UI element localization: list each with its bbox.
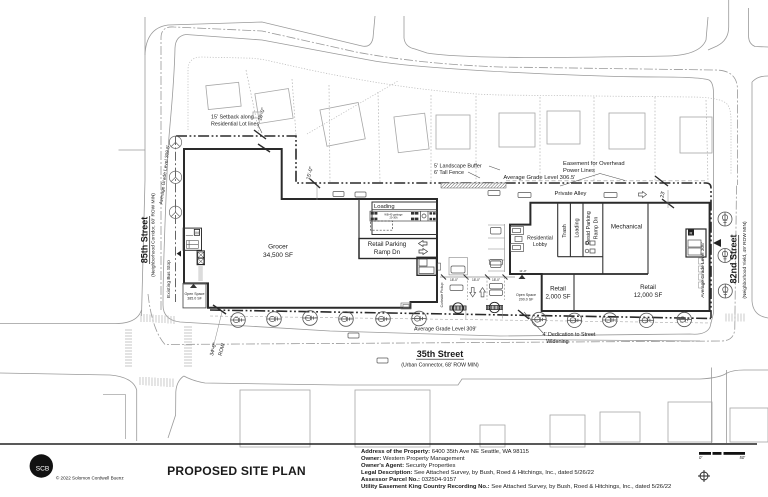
svg-text:Ramp Dn: Ramp Dn [374,249,401,256]
svg-text:Loading: Loading [575,218,581,237]
svg-text:Retail: Retail [640,284,656,291]
svg-text:34,500 SF: 34,500 SF [263,252,293,259]
svg-text:12,000 SF: 12,000 SF [634,292,663,299]
svg-text:Mechanical: Mechanical [611,224,642,231]
svg-text:Private Alley: Private Alley [555,191,587,197]
svg-text:15' Setback along: 15' Setback along [211,115,254,121]
svg-text:4' Dedication to Street: 4' Dedication to Street [543,332,596,338]
svg-text:6' Tall Fence: 6' Tall Fence [434,170,464,176]
svg-text:PROPOSED SITE PLAN: PROPOSED SITE PLAN [167,464,306,478]
svg-text:5' Landscape Buffer: 5' Landscape Buffer [434,164,482,170]
svg-text:Curbside Pickup: Curbside Pickup [440,283,444,308]
svg-text:Grocer: Grocer [268,244,289,251]
svg-text:© 2022 Solomon Cordwell Buenz: © 2022 Solomon Cordwell Buenz [56,475,124,481]
svg-text:Retail: Retail [550,286,566,293]
svg-text:0': 0' [699,455,702,460]
svg-text:20-30ft: 20-30ft [389,216,397,220]
svg-text:Retail Parking: Retail Parking [368,241,407,248]
svg-text:Loading: Loading [374,204,395,210]
svg-text:Easement for Overhead: Easement for Overhead [563,161,625,167]
svg-text:Legal Description: See Attache: Legal Description: See Attached Survey, … [361,470,594,476]
svg-text:23': 23' [660,191,667,199]
svg-text:Average Grade Level 306.5': Average Grade Level 306.5' [503,175,575,181]
svg-text:Assessor Parcel No.: 032504-91: Assessor Parcel No.: 032504-9157 [361,477,456,483]
svg-text:Open Space: Open Space [185,292,205,296]
svg-text:Resid Parking: Resid Parking [586,211,592,245]
svg-text:Average Grade Level 309': Average Grade Level 309' [414,327,476,333]
svg-text:11'-0": 11'-0" [519,269,526,273]
svg-text:2,000 SF: 2,000 SF [545,293,570,300]
svg-text:Residential: Residential [527,236,553,242]
svg-text:(Neighborhood Corridor, 60' RO: (Neighborhood Corridor, 60' ROW MIN) [151,193,157,277]
svg-text:(Urban Connector, 68' ROW MIN): (Urban Connector, 68' ROW MIN) [401,363,479,369]
svg-text:Residential Lot lines: Residential Lot lines [211,122,260,128]
svg-text:Power Lines: Power Lines [563,168,595,174]
svg-text:SCB: SCB [36,466,50,473]
svg-text:18'-0": 18'-0" [472,278,480,282]
svg-text:Owner's Agent: Security Proper: Owner's Agent: Security Properties [361,463,456,469]
svg-text:Average Grade Level 306': Average Grade Level 306' [700,242,706,298]
svg-text:Lobby: Lobby [533,242,548,248]
svg-text:R: R [690,230,693,235]
svg-text:82nd Street: 82nd Street [729,234,739,283]
svg-text:Address of the Property: 6400: Address of the Property: 6400 35th Ave N… [361,449,530,455]
svg-text:85th Street: 85th Street [140,217,150,264]
svg-text:M: M [195,230,198,235]
svg-text:Utility Easement King Country: Utility Easement King Country Recording … [361,484,671,490]
svg-text:Trash: Trash [562,224,568,238]
svg-text:Ramp Dn: Ramp Dn [594,217,600,240]
svg-text:35th Street: 35th Street [417,349,464,359]
svg-text:Open Space: Open Space [516,293,536,297]
svg-text:(Neighborhood Yield, 49' ROW M: (Neighborhood Yield, 49' ROW MIN) [742,221,748,299]
svg-text:18'-0": 18'-0" [492,278,500,282]
svg-text:200.0 SF: 200.0 SF [519,298,534,302]
svg-text:Owner: Western Property Manage: Owner: Western Property Management [361,456,465,462]
svg-text:50': 50' [740,455,746,460]
svg-text:Existing Bus Stop: Existing Bus Stop [166,260,172,298]
svg-text:18'-0": 18'-0" [450,278,458,282]
svg-text:385.0 SF: 385.0 SF [187,297,202,301]
svg-text:Widening: Widening [546,339,568,345]
